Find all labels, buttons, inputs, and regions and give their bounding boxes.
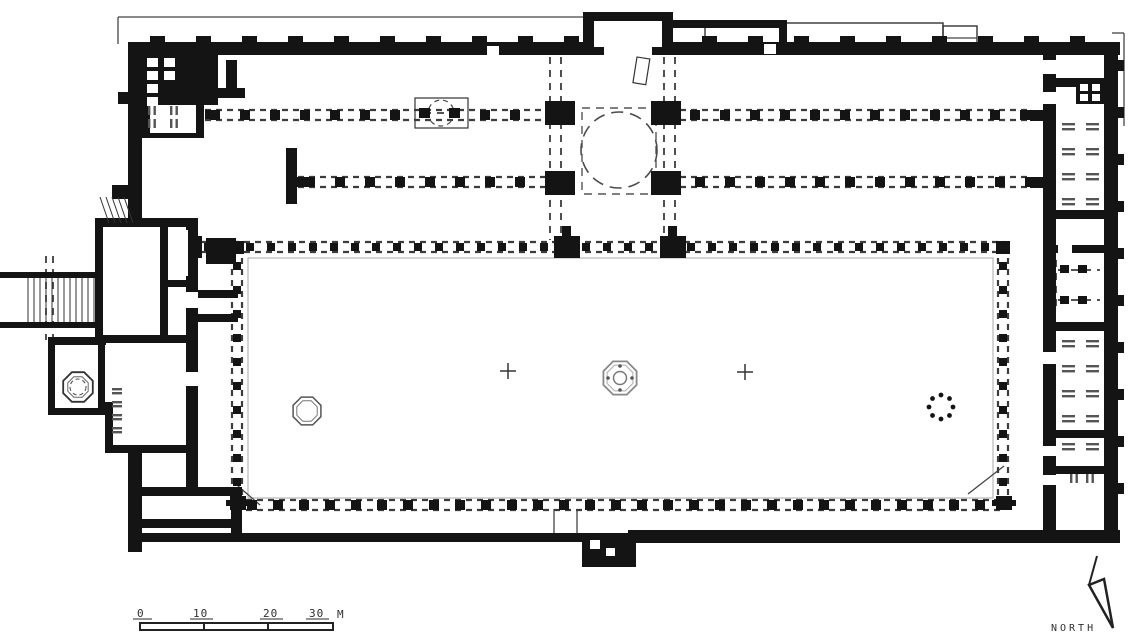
column-marker (923, 500, 933, 510)
column-marker (233, 430, 241, 438)
column-marker (299, 500, 309, 510)
merlon (334, 36, 349, 42)
wall-segment (1045, 322, 1117, 331)
column-marker (918, 243, 926, 251)
wall-opening (164, 58, 175, 67)
column-marker (377, 500, 387, 510)
wall-segment (128, 519, 242, 528)
fountain-octagon (68, 377, 88, 397)
room-hatch-mark (112, 405, 122, 407)
column-marker (949, 500, 959, 510)
room-hatch-mark (112, 392, 122, 394)
wall-opening (1092, 94, 1100, 101)
well-dot (951, 405, 956, 410)
column-marker (477, 243, 485, 251)
scale-label-30: 30 (309, 607, 324, 620)
room-hatch-mark (1086, 173, 1099, 175)
column-marker (690, 110, 700, 120)
column-marker (515, 177, 525, 187)
north-label: NORTH (1051, 623, 1096, 634)
column-marker (897, 243, 905, 251)
column-marker (965, 177, 975, 187)
wall-buttress (1118, 154, 1124, 165)
dome-dashed-circle (70, 379, 86, 395)
room-hatch-mark (1086, 448, 1099, 450)
wall-segment (205, 110, 215, 119)
floor-plan: 0 10 20 30 M NORTH (0, 0, 1139, 642)
wall-opening (487, 46, 499, 55)
wall-segment (118, 92, 128, 104)
column-marker (540, 243, 548, 251)
column-marker (246, 243, 254, 251)
wall-opening (590, 540, 600, 549)
wall-segment (545, 171, 575, 195)
column-marker (330, 110, 340, 120)
fountain-dot (618, 364, 622, 368)
column-marker (793, 500, 803, 510)
room-hatch-mark (1062, 443, 1075, 445)
column-marker (372, 243, 380, 251)
column-marker (870, 110, 880, 120)
wall-segment (142, 133, 204, 138)
dome-bay-dashed-square (582, 108, 656, 194)
well-dot (930, 413, 935, 418)
room-hatch-mark (1062, 448, 1075, 450)
column-marker (498, 243, 506, 251)
wall-segment (651, 171, 681, 195)
wall-opening (1080, 94, 1088, 101)
wall-buttress (1118, 60, 1124, 71)
merlon (288, 36, 303, 42)
wall-segment (0, 322, 100, 328)
column-marker (845, 177, 855, 187)
column-marker (637, 500, 647, 510)
room-hatch-mark (1062, 198, 1075, 200)
column-marker (395, 177, 405, 187)
wall-opening (168, 230, 188, 276)
merlon (840, 36, 855, 42)
room-hatch-mark (112, 427, 122, 429)
wall-opening (1058, 245, 1072, 253)
wall-buttress (1118, 107, 1124, 118)
outline-structure (248, 258, 993, 498)
column-marker (930, 110, 940, 120)
wall-segment (160, 280, 194, 287)
wall-segment (661, 20, 787, 28)
wall-segment (230, 241, 244, 254)
merlon (886, 36, 901, 42)
room-hatch-mark (1062, 415, 1075, 417)
column-marker (270, 110, 280, 120)
column-marker (603, 243, 611, 251)
column-marker (273, 500, 283, 510)
column-marker (645, 243, 653, 251)
column-marker (780, 110, 790, 120)
wall-segment (188, 408, 197, 417)
column-marker (725, 177, 735, 187)
column-marker (559, 500, 569, 510)
room-hatch-mark (1062, 128, 1075, 130)
column-marker (975, 500, 985, 510)
column-marker (611, 500, 621, 510)
column-marker (481, 500, 491, 510)
column-marker (429, 500, 439, 510)
column-marker (695, 177, 705, 187)
room-hatch-mark (1086, 345, 1099, 347)
merlon (564, 36, 579, 42)
room-hatch-mark (1086, 128, 1099, 130)
room-hatch-mark (112, 414, 122, 416)
column-marker (845, 500, 855, 510)
well-dot (939, 417, 944, 422)
wall-opening (164, 71, 175, 80)
north-arrow-tail (1089, 556, 1097, 585)
wall-segment (562, 226, 571, 236)
column-marker (300, 110, 310, 120)
wall-buttress (1118, 295, 1124, 306)
column-marker (900, 110, 910, 120)
well-dot (939, 393, 944, 398)
room-hatch-mark (112, 401, 122, 403)
fountain-circle (614, 372, 627, 385)
wall-opening (1043, 446, 1056, 456)
dome-dashed-circle (581, 112, 657, 188)
wall-segment (1045, 245, 1117, 253)
well-dot (947, 413, 952, 418)
column-marker (507, 500, 517, 510)
merlon (426, 36, 441, 42)
merlon (748, 36, 763, 42)
column-marker (767, 500, 777, 510)
wall-segment (198, 314, 238, 322)
column-marker (960, 243, 968, 251)
column-marker (771, 243, 779, 251)
room-hatch-mark (148, 119, 150, 128)
floor-plan-canvas: 0 10 20 30 M NORTH (0, 0, 1139, 642)
column-marker (485, 177, 495, 187)
column-marker (480, 110, 490, 120)
column-marker (414, 243, 422, 251)
column-marker (741, 500, 751, 510)
minbar (633, 57, 650, 85)
column-marker (999, 334, 1007, 342)
room-hatch-mark (1062, 370, 1075, 372)
column-marker (792, 243, 800, 251)
wall-segment (1045, 466, 1117, 474)
wall-segment (1030, 177, 1044, 188)
north-arrow: NORTH (1051, 556, 1113, 634)
wall-segment (98, 345, 105, 415)
column-marker (240, 110, 250, 120)
wall-segment (188, 312, 197, 321)
column-marker (729, 243, 737, 251)
room-hatch-mark (1062, 178, 1075, 180)
wall-opening (1080, 84, 1088, 91)
wall-opening (1092, 84, 1100, 91)
room-hatch-mark (1062, 340, 1075, 342)
column-marker (233, 454, 241, 462)
wall-buttress (1118, 436, 1124, 447)
room-hatch-mark (1086, 153, 1099, 155)
room-hatch-mark (1062, 203, 1075, 205)
wall-opening (147, 84, 158, 93)
column-marker (935, 177, 945, 187)
wall-opening (1043, 60, 1056, 74)
merlon (380, 36, 395, 42)
column-marker (403, 500, 413, 510)
room-hatch-mark (1086, 340, 1099, 342)
merlon (1024, 36, 1039, 42)
wall-segment (992, 500, 1016, 506)
wall-segment (196, 100, 204, 138)
wall-segment (105, 402, 113, 452)
wall-opening (764, 44, 776, 54)
column-marker (815, 177, 825, 187)
column-marker (999, 406, 1007, 414)
column-marker (999, 310, 1007, 318)
column-marker (335, 177, 345, 187)
room-hatch-mark (1076, 474, 1078, 483)
wall-segment (48, 337, 55, 415)
room-hatch-mark (1086, 395, 1099, 397)
room-hatch-mark (170, 119, 172, 128)
scale-label-10: 10 (193, 607, 208, 620)
wall-segment (48, 337, 106, 345)
room-hatch-mark (1086, 123, 1099, 125)
wall-opening (186, 292, 198, 308)
column-marker (819, 500, 829, 510)
wall-segment (1060, 296, 1069, 304)
fountain-dot (606, 376, 610, 380)
column-marker (720, 110, 730, 120)
wall-opening (606, 548, 615, 556)
column-marker (840, 110, 850, 120)
well-dot (947, 396, 952, 401)
room-hatch-mark (170, 106, 172, 115)
column-marker (351, 243, 359, 251)
column-marker (876, 243, 884, 251)
room-hatch-mark (1092, 474, 1094, 483)
column-marker (233, 478, 241, 486)
column-marker (233, 406, 241, 414)
wall-segment (128, 487, 242, 496)
column-marker (905, 177, 915, 187)
column-marker (663, 500, 673, 510)
room-hatch-mark (1086, 474, 1088, 483)
room-hatch-mark (1062, 173, 1075, 175)
column-marker (330, 243, 338, 251)
column-marker (875, 177, 885, 187)
wall-segment (1045, 210, 1117, 219)
wall-segment (1045, 430, 1117, 438)
column-marker (897, 500, 907, 510)
room-hatch-mark (1086, 443, 1099, 445)
column-marker (810, 110, 820, 120)
column-marker (456, 243, 464, 251)
wall-segment (668, 226, 677, 236)
wall-segment (1060, 265, 1069, 273)
wall-segment (188, 360, 197, 369)
room-hatch-mark (1086, 415, 1099, 417)
column-marker (750, 243, 758, 251)
wall-opening (147, 58, 158, 67)
wall-segment (1030, 110, 1044, 121)
column-marker (533, 500, 543, 510)
column-marker (351, 500, 361, 510)
column-marker (309, 243, 317, 251)
room-hatch-mark (148, 106, 150, 115)
column-marker (834, 243, 842, 251)
wall-segment (112, 185, 128, 199)
column-marker (510, 110, 520, 120)
merlon (932, 36, 947, 42)
column-marker (585, 500, 595, 510)
wall-segment (128, 42, 142, 224)
room-hatch-mark (176, 106, 178, 115)
wall-segment (660, 236, 686, 258)
column-marker (999, 478, 1007, 486)
wall-segment (996, 241, 1010, 254)
scale-label-20: 20 (263, 607, 278, 620)
room-hatch-mark (1086, 178, 1099, 180)
room-hatch-mark (1086, 365, 1099, 367)
column-marker (624, 243, 632, 251)
merlon (150, 36, 165, 42)
wall-buttress (1118, 342, 1124, 353)
wall-segment (188, 264, 197, 273)
column-marker (960, 110, 970, 120)
column-marker (288, 243, 296, 251)
column-marker (582, 243, 590, 251)
column-marker (785, 177, 795, 187)
room-hatch-mark (1062, 148, 1075, 150)
column-marker (999, 262, 1007, 270)
north-arrow-head (1089, 579, 1113, 628)
room-hatch-mark (112, 388, 122, 390)
column-marker (981, 243, 989, 251)
room-hatch-mark (1062, 395, 1075, 397)
wall-segment (1078, 296, 1087, 304)
wall-buttress (1118, 483, 1124, 494)
room-hatch-mark (1086, 203, 1099, 205)
wall-segment (1078, 265, 1087, 273)
scale-bar-body (140, 623, 333, 630)
wall-segment (226, 500, 250, 506)
room-hatch-mark (1086, 370, 1099, 372)
scale-unit-label: M (337, 608, 345, 621)
fountain-dot (618, 388, 622, 392)
column-marker (455, 177, 465, 187)
scale-label-0: 0 (137, 607, 145, 620)
wall-segment (217, 88, 245, 98)
scale-bar: 0 10 20 30 M (133, 607, 345, 630)
room-hatch-mark (1062, 390, 1075, 392)
room-hatch-mark (1062, 153, 1075, 155)
wall-segment (286, 148, 297, 204)
column-marker (708, 243, 716, 251)
room-hatch-mark (112, 418, 122, 420)
column-marker (871, 500, 881, 510)
column-marker (360, 110, 370, 120)
room-hatch-mark (112, 431, 122, 433)
merlon (794, 36, 809, 42)
wall-buttress (1118, 201, 1124, 212)
room-hatch-mark (1062, 420, 1075, 422)
room-hatch-mark (1062, 365, 1075, 367)
room-hatch-mark (1086, 390, 1099, 392)
room-hatch-mark (1070, 474, 1072, 483)
well-dot (927, 405, 932, 410)
merlon (472, 36, 487, 42)
room-hatch-mark (154, 106, 156, 115)
wall-segment (0, 272, 100, 278)
merlon (702, 36, 717, 42)
wall-opening (186, 372, 198, 386)
room-hatch-mark (1086, 198, 1099, 200)
wall-opening (604, 42, 652, 55)
column-marker (233, 382, 241, 390)
merlon (518, 36, 533, 42)
wall-buttress (1118, 248, 1124, 259)
column-marker (435, 243, 443, 251)
wall-segment (554, 236, 580, 258)
column-marker (755, 177, 765, 187)
column-marker (990, 110, 1000, 120)
wall-opening (147, 97, 158, 106)
fountain-octagon (607, 365, 633, 391)
wall-segment (545, 101, 575, 125)
wall-segment (48, 408, 106, 415)
column-marker (995, 177, 1005, 187)
room-hatch-mark (1086, 148, 1099, 150)
column-marker (455, 500, 465, 510)
column-marker (365, 177, 375, 187)
column-marker (855, 243, 863, 251)
wall-segment (651, 101, 681, 125)
column-marker (1020, 110, 1030, 120)
room-hatch-mark (1086, 420, 1099, 422)
plan-drawing (0, 12, 1124, 567)
column-marker (390, 110, 400, 120)
column-marker (233, 358, 241, 366)
column-marker (813, 243, 821, 251)
room-hatch-mark (154, 119, 156, 128)
wall-segment (296, 177, 307, 187)
column-marker (519, 243, 527, 251)
column-marker (750, 110, 760, 120)
well-dot (930, 396, 935, 401)
merlon (242, 36, 257, 42)
column-marker (715, 500, 725, 510)
wall-segment (449, 108, 460, 118)
wall-segment (105, 445, 190, 453)
merlon (1070, 36, 1085, 42)
room-hatch-mark (1062, 345, 1075, 347)
wall-segment (95, 218, 195, 227)
wall-opening (1043, 92, 1056, 104)
column-marker (425, 177, 435, 187)
column-marker (325, 500, 335, 510)
wall-segment (198, 290, 238, 298)
column-marker (999, 430, 1007, 438)
wall-segment (95, 335, 194, 343)
merlon (196, 36, 211, 42)
column-marker (687, 243, 695, 251)
column-marker (999, 358, 1007, 366)
wall-segment (419, 108, 430, 118)
fountain-dot (630, 376, 634, 380)
column-marker (393, 243, 401, 251)
